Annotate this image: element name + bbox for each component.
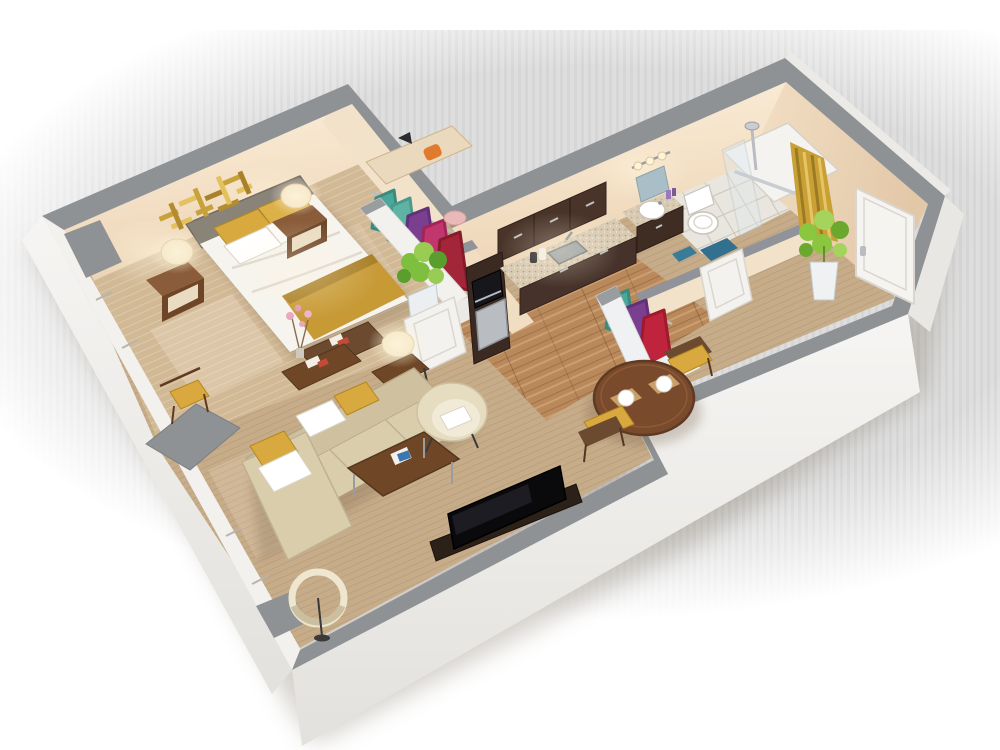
plate-1	[618, 390, 634, 406]
floorplan-render	[0, 0, 1000, 750]
plate-2	[656, 376, 672, 392]
entry-door-handle	[860, 246, 866, 256]
pink-hat	[444, 211, 466, 225]
floorplan-svg	[0, 0, 1000, 750]
toiletry-bottles	[666, 190, 671, 199]
shower-head	[745, 122, 759, 130]
